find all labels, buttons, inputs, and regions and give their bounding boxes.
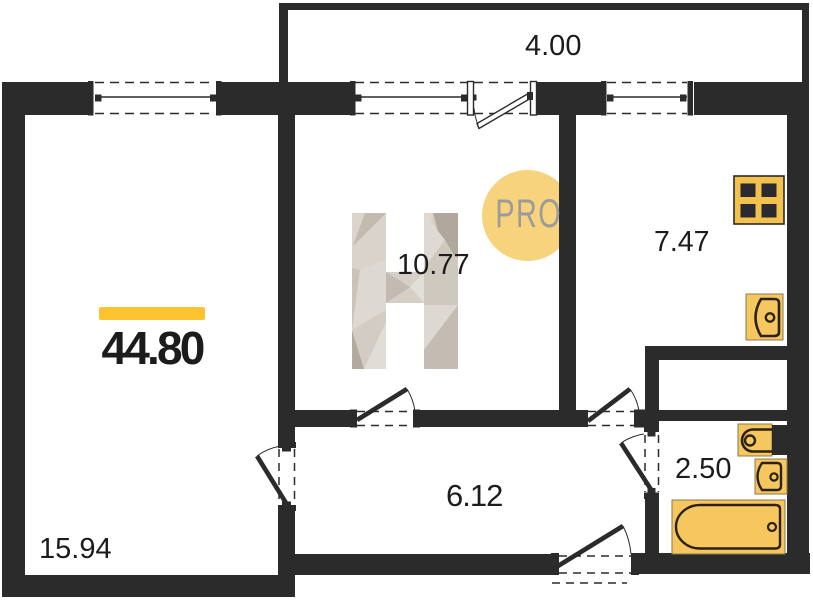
svg-text:7.47: 7.47 xyxy=(654,226,709,258)
svg-text:PRO: PRO xyxy=(495,191,562,236)
svg-text:2.50: 2.50 xyxy=(675,453,731,485)
svg-text:4.00: 4.00 xyxy=(525,30,581,62)
svg-text:44.80: 44.80 xyxy=(101,322,203,374)
svg-text:10.77: 10.77 xyxy=(397,249,470,281)
svg-text:15.94: 15.94 xyxy=(39,533,112,565)
svg-text:6.12: 6.12 xyxy=(446,478,502,513)
